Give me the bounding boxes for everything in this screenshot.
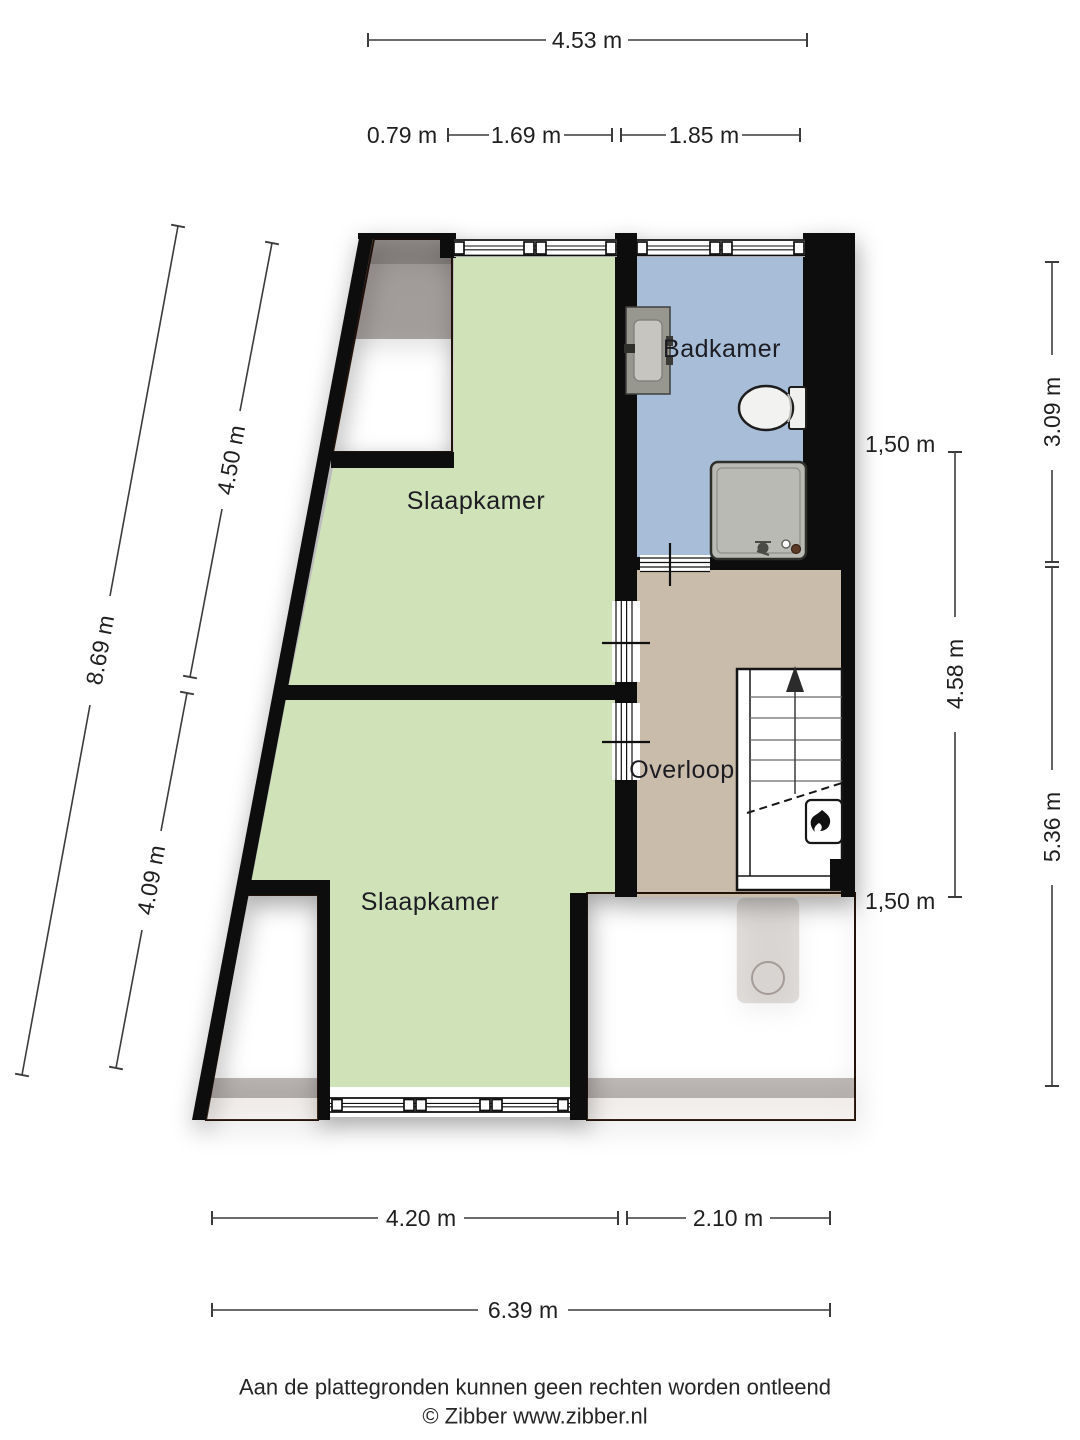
wall-stub-stairs	[830, 859, 855, 890]
dim-right-bathroom: 3.09 m	[1039, 262, 1065, 562]
dim-top-total: 4.53 m	[368, 27, 807, 53]
dim-left-upper: 4.50 m	[183, 242, 279, 679]
dim-top-total-label: 4.53 m	[552, 27, 622, 53]
window-top-bedroom	[454, 239, 617, 257]
dim-top-bathroom-label: 1.85 m	[669, 122, 739, 148]
floorplan-canvas: Slaapkamer Badkamer Overloop Slaapkamer …	[0, 0, 1080, 1440]
window-bottom-bedroom	[330, 1087, 570, 1117]
floorplan-page: Slaapkamer Badkamer Overloop Slaapkamer …	[0, 0, 1080, 1440]
floorplan-drawing: Slaapkamer Badkamer Overloop Slaapkamer	[192, 233, 855, 1120]
dim-bottom-bedroom-label: 4.20 m	[386, 1205, 456, 1231]
dim-right-middle: 4.58 m	[942, 452, 968, 897]
wall-stub-bottom-left	[318, 893, 330, 1120]
washbasin-tap-icon	[624, 344, 635, 353]
footer: Aan de plattegronden kunnen geen rechten…	[239, 1375, 831, 1429]
dim-knee-top-label: 1,50 m	[865, 431, 935, 457]
room-label-bedroom-top: Slaapkamer	[407, 487, 545, 515]
dim-knee-bottom-label: 1,50 m	[865, 888, 935, 914]
dim-top-bedroom-label: 1.69 m	[491, 122, 561, 148]
roof-ghost-object	[737, 898, 799, 1003]
dim-bottom-total-label: 6.39 m	[488, 1297, 558, 1323]
roof-area-bottom-right	[587, 893, 855, 1120]
wall-between-bedrooms	[283, 685, 637, 700]
knee-wall-top-left	[331, 452, 454, 468]
wall-top-roof-edge	[358, 233, 454, 239]
dim-left-lower: 4.09 m	[109, 692, 194, 1070]
dim-bottom-landing: 2.10 m	[627, 1205, 830, 1231]
dim-right-middle-label: 4.58 m	[942, 639, 968, 709]
dim-left-total: 8.69 m	[15, 225, 185, 1077]
dim-bottom-total: 6.39 m	[212, 1297, 830, 1323]
dim-right-bathroom-label: 3.09 m	[1039, 377, 1065, 447]
footer-disclaimer: Aan de plattegronden kunnen geen rechten…	[239, 1375, 831, 1400]
boiler	[806, 800, 842, 843]
dim-left-upper-label: 4.50 m	[212, 423, 250, 497]
room-label-landing: Overloop	[629, 756, 734, 784]
dim-left-lower-label: 4.09 m	[132, 843, 170, 917]
wall-right-top	[803, 233, 855, 570]
dim-right-lower: 5.36 m	[1039, 567, 1065, 1086]
window-top-bathroom	[637, 239, 805, 257]
shower	[711, 462, 806, 559]
room-label-bathroom: Badkamer	[663, 335, 781, 363]
wall-stub-bottom-middle	[570, 893, 587, 1120]
dim-top-roof-label: 0.79 m	[367, 122, 437, 148]
toilet	[739, 386, 806, 430]
dim-top-segments: 0.79 m 1.69 m 1.85 m	[367, 122, 800, 148]
knee-wall-bottom-left	[247, 880, 330, 895]
dim-bottom-bedroom: 4.20 m	[212, 1205, 618, 1231]
room-label-bedroom-bottom: Slaapkamer	[361, 888, 499, 916]
staircase	[737, 666, 855, 890]
dim-right-lower-label: 5.36 m	[1039, 792, 1065, 862]
dim-left-total-label: 8.69 m	[81, 613, 119, 687]
footer-credit: © Zibber www.zibber.nl	[422, 1404, 647, 1429]
dim-bottom-landing-label: 2.10 m	[693, 1205, 763, 1231]
